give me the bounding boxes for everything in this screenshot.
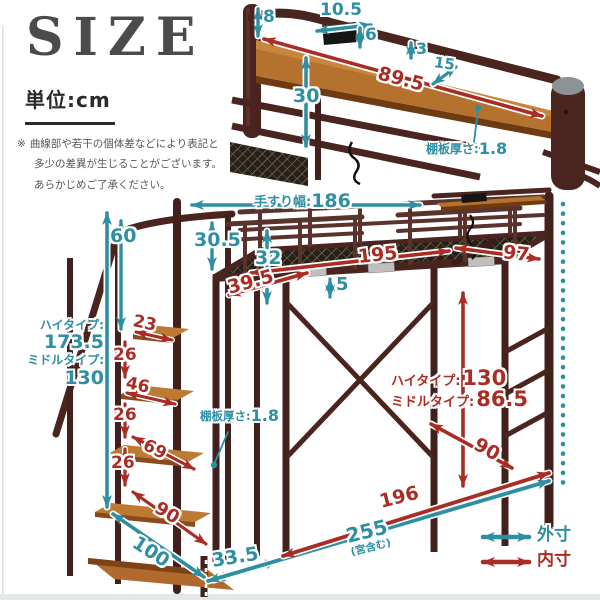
dim-step-gap1: 26 <box>113 347 137 364</box>
dim-under-height-middle: ミドルタイプ:86.5 <box>391 389 528 410</box>
high-type-value: 173.5 <box>18 332 104 353</box>
dim-headboard-height: 30 <box>293 87 319 106</box>
middle-type-label: ミドルタイプ: <box>18 353 104 367</box>
dim-rail-to-step: 60 <box>110 227 136 246</box>
disclaimer-note: ※曲線部や若干の個体差などにより表記と 多少の差異が生じることがございます。 あ… <box>17 134 222 195</box>
unit-label: 単位:cm <box>25 84 115 125</box>
dim-step-gap2: 26 <box>113 407 137 424</box>
dim-step2-depth: 46 <box>124 375 151 397</box>
dim-frame-lip: 5 <box>336 276 349 294</box>
dim-handrail-width: 手すり幅:186 <box>254 192 351 211</box>
dim-inset-shelf-thickness: 棚板厚さ:1.8 <box>426 141 507 157</box>
note-line-2: 多少の差異が生じることがございます。 <box>17 154 222 174</box>
dim-step-gap3: 26 <box>111 455 135 472</box>
legend-outer-label: 外寸 <box>537 527 571 544</box>
note-line-3: あらかじめご了承ください。 <box>17 175 222 195</box>
dim-step1-depth: 23 <box>131 313 158 335</box>
dim-under-height-high: ハイタイプ:130 <box>391 368 506 389</box>
dim-inner-length: 195 <box>357 244 398 267</box>
dim-post-height: 8 <box>263 9 275 26</box>
dim-outlet-width: 10.5 <box>320 2 362 19</box>
note-line-1: ※曲線部や若干の個体差などにより表記と <box>17 134 222 154</box>
dim-inner-right: 97 <box>502 243 531 265</box>
note-marker: ※ <box>17 138 26 150</box>
high-type-label: ハイタイプ: <box>18 318 104 332</box>
dim-main-shelf-thickness: 棚板厚さ:1.8 <box>200 408 279 424</box>
product-size-diagram: SIZE 単位:cm ※曲線部や若干の個体差などにより表記と 多少の差異が生じる… <box>0 0 600 600</box>
page-title: SIZE <box>26 12 205 64</box>
legend-inner-label: 内寸 <box>537 552 571 569</box>
bottom-strip <box>0 594 600 600</box>
dim-shelf-depth: 15 <box>433 55 456 73</box>
headboard-shelf-inset <box>230 4 600 190</box>
dim-outlet-height: 6 <box>365 27 377 44</box>
dim-guard-front-height: 30.5 <box>194 231 241 250</box>
left-border <box>2 25 4 595</box>
dim-rail-gap: 3 <box>416 41 427 57</box>
middle-type-value: 130 <box>18 368 104 389</box>
dim-total-height: ハイタイプ: 173.5 ミドルタイプ: 130 <box>18 318 104 389</box>
